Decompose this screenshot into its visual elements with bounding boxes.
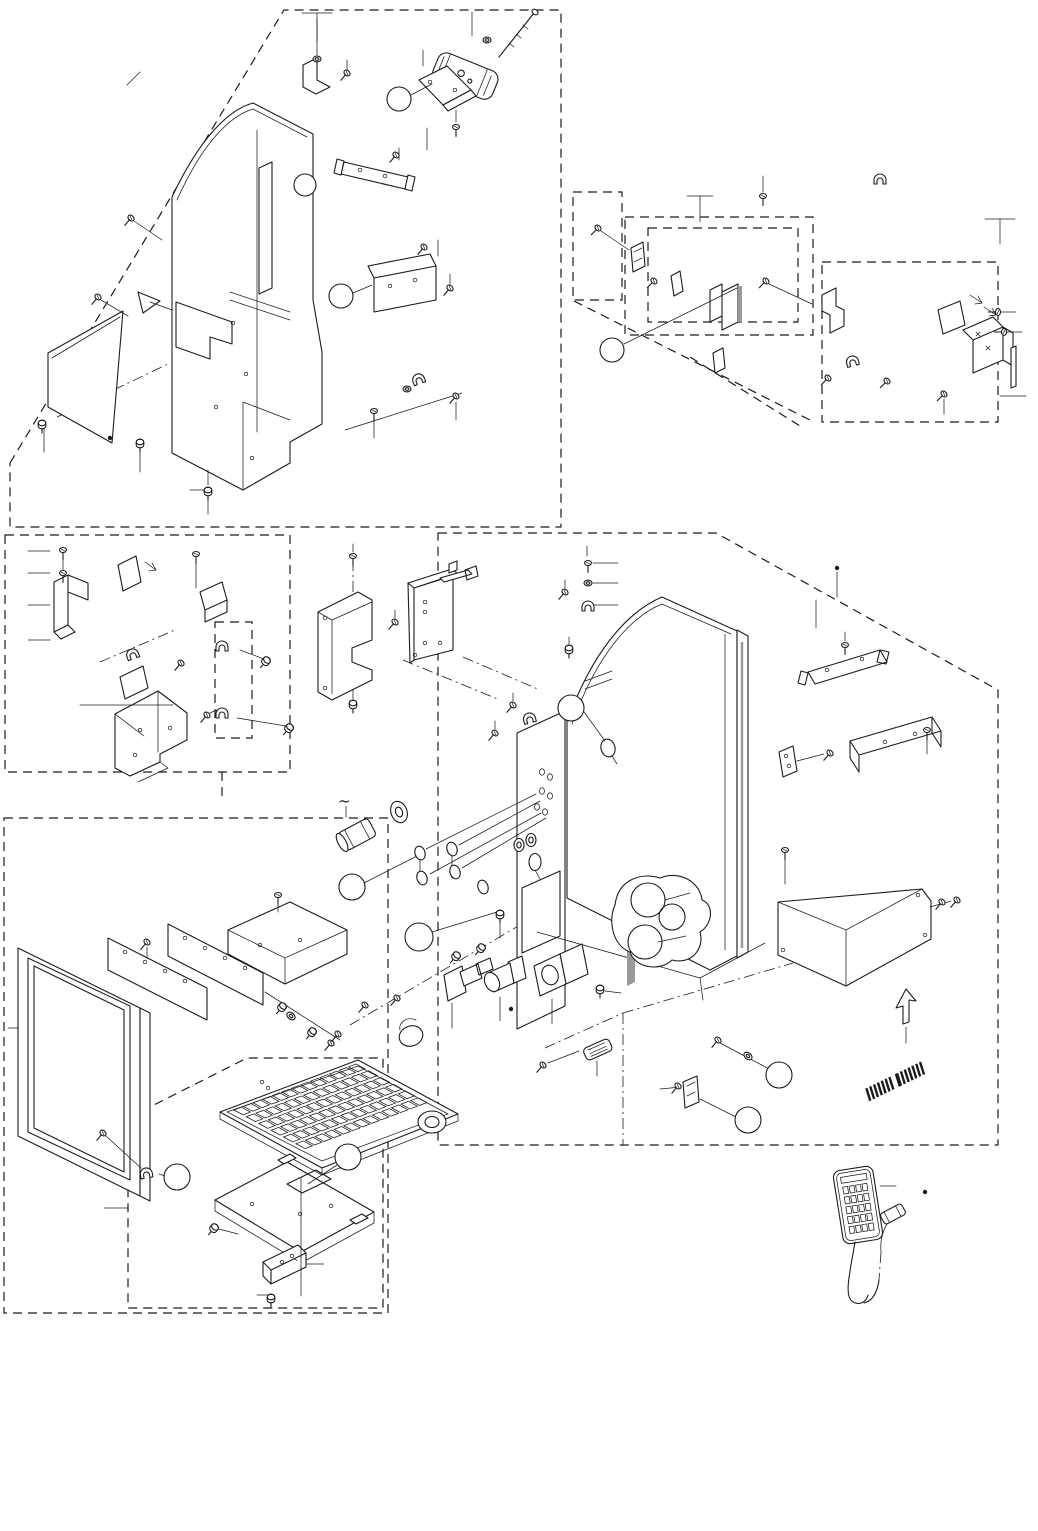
clip-plate <box>118 556 141 591</box>
d-sub-connector <box>582 1038 613 1061</box>
screw-icon <box>556 588 569 602</box>
flat-bar-bracket <box>341 162 408 189</box>
bolt-icon <box>596 985 604 998</box>
point-marker <box>835 566 839 570</box>
remote-cable <box>848 1242 868 1303</box>
long-screw <box>499 8 539 57</box>
monitor-assembly <box>18 902 347 1201</box>
side-plate <box>779 746 797 777</box>
boundary-hinge-small <box>573 192 622 300</box>
screw-icon <box>386 618 399 632</box>
callout-circle <box>735 1107 761 1133</box>
bolt-icon <box>281 722 295 737</box>
screw-icon <box>89 293 102 307</box>
remote-keypad <box>832 1165 883 1244</box>
reference-ticks <box>8 13 1015 1208</box>
triangle-clip <box>138 292 160 313</box>
small-plate <box>671 271 683 296</box>
direction-arrow-part <box>896 989 916 1024</box>
remote-keypad-assembly <box>832 1062 925 1303</box>
bolt-icon <box>304 1026 318 1041</box>
screw-icon <box>453 125 460 137</box>
screw-icon <box>935 390 948 403</box>
screw-hole <box>260 1080 264 1084</box>
screw-icon <box>138 938 151 952</box>
rubber-grommet <box>448 864 462 880</box>
cable-connector <box>880 1203 907 1225</box>
z-bracket <box>710 284 738 330</box>
boundary-diagonal-2 <box>690 357 800 426</box>
callout-circle <box>294 174 316 196</box>
screw-icon <box>842 643 849 655</box>
screw-icon <box>387 151 400 165</box>
small-mount-plate <box>200 582 227 622</box>
clamp-icon <box>411 372 426 386</box>
callout-circle <box>405 923 433 951</box>
tray-bracket <box>263 1245 306 1284</box>
nut-icon <box>313 56 321 62</box>
z-clip <box>822 288 844 333</box>
bolt-icon <box>496 910 504 923</box>
grommet-icon <box>514 839 524 852</box>
bolt-icon <box>473 942 487 957</box>
washer-ring <box>388 799 411 825</box>
clamp-icon <box>874 174 886 184</box>
boundary-tick <box>127 72 140 85</box>
screw-icon <box>589 224 602 237</box>
screw-icon <box>948 896 961 910</box>
latch-bracket <box>963 317 1013 373</box>
diagram-canvas: ~ <box>0 0 1038 1531</box>
bolt-icon <box>136 439 144 452</box>
callout-circle <box>387 87 411 111</box>
bolt-icon <box>349 700 357 713</box>
column-cover <box>172 103 322 490</box>
latch-strip <box>1011 346 1016 388</box>
screw-icon <box>350 554 357 566</box>
keyboard-tray-assembly <box>215 1060 458 1284</box>
bolt-icon <box>38 420 46 433</box>
direction-arrow <box>145 562 156 571</box>
boundary-latch-group <box>822 262 998 422</box>
side-panel <box>48 311 123 443</box>
screw-icon <box>486 729 499 743</box>
large-l-bracket <box>115 691 187 776</box>
z-strip-bracket <box>54 575 88 639</box>
round-cap <box>396 1019 425 1050</box>
clamp-icon <box>216 708 228 718</box>
callout-circle <box>329 284 353 308</box>
bolt-icon <box>565 645 573 658</box>
point-marker <box>509 1007 513 1011</box>
bolt-icon <box>448 950 462 965</box>
callout-circle <box>335 1144 361 1170</box>
small-channel-bracket <box>631 242 645 272</box>
angle-bracket <box>318 592 372 700</box>
column-cover-assembly <box>48 8 539 490</box>
screw-icon <box>821 749 834 763</box>
screw-icon <box>193 552 200 564</box>
chassis-keyhole <box>529 854 541 871</box>
z-bracket-shade <box>738 286 742 322</box>
screw-icon <box>782 848 789 860</box>
screw-icon <box>275 893 282 905</box>
small-bracket-group <box>54 556 227 782</box>
screw-icon <box>60 548 67 560</box>
screw-icon <box>534 1061 547 1075</box>
clamp-icon <box>582 601 594 611</box>
screw-hole <box>266 1086 270 1090</box>
clamp-icon <box>216 641 228 651</box>
exploded-parts-diagram: ~ <box>0 0 1038 1531</box>
screw-icon <box>122 214 135 228</box>
screw-icon <box>338 69 351 83</box>
screw-icon <box>198 711 211 725</box>
trackball-bezel <box>418 1111 446 1133</box>
clamp-icon <box>522 712 536 725</box>
top-bracket <box>303 58 330 94</box>
point-marker <box>923 1190 927 1194</box>
screw-icon <box>878 377 891 390</box>
latch-plate <box>938 301 965 334</box>
grommet-icon <box>526 834 536 847</box>
clamp-icon <box>845 355 859 368</box>
screw-icon <box>322 1039 335 1053</box>
small-strip <box>713 348 725 373</box>
point-marker <box>108 436 112 440</box>
rubber-grommet <box>445 841 459 857</box>
bolt-icon <box>267 1294 275 1307</box>
mid-plate <box>120 666 148 699</box>
screw-icon <box>645 277 658 290</box>
callout-circle <box>600 338 624 362</box>
cover-box <box>778 889 931 986</box>
tall-plate-bracket <box>408 569 458 663</box>
small-mount-bracket <box>683 1076 699 1108</box>
washer-icon <box>285 1011 296 1022</box>
nut-icon <box>483 37 491 43</box>
l-bracket <box>368 254 436 312</box>
screw-icon <box>933 898 946 912</box>
nut-icon <box>584 580 592 586</box>
boundary-bracket-subgroup <box>215 622 252 738</box>
callout-circle <box>558 695 584 721</box>
screw-icon <box>709 1036 722 1050</box>
direction-arrows <box>970 295 996 316</box>
hinge-latch-assembly <box>631 242 1016 388</box>
callout-circle <box>339 874 365 900</box>
caution-label-sticker <box>865 1062 926 1101</box>
screw-icon <box>585 561 592 573</box>
screw-icon <box>356 1001 369 1015</box>
slant-bar-bracket <box>798 650 889 685</box>
screw-icon <box>371 409 378 421</box>
lcd-monitor <box>18 948 150 1201</box>
screw-icon <box>819 374 832 387</box>
screw-icon <box>172 659 185 673</box>
screw-icon <box>760 194 767 206</box>
ac-power-symbol: ~ <box>338 792 351 810</box>
screw-icon <box>504 701 517 715</box>
clamp-icon <box>125 647 140 661</box>
bolt-icon <box>204 487 212 500</box>
rubber-grommet <box>415 870 429 886</box>
screw-icon <box>669 1082 682 1096</box>
callout-circle <box>766 1062 792 1088</box>
nut-icon <box>403 386 411 392</box>
callout-circle <box>164 1164 190 1190</box>
bolt-icon <box>274 1001 288 1016</box>
screw-icon <box>757 277 770 290</box>
remote-cable-break <box>879 1252 881 1280</box>
screw-icon <box>441 284 454 298</box>
main-cabinet-assembly <box>318 560 941 1108</box>
power-inlet <box>334 818 377 853</box>
bolt-icon <box>206 1222 220 1237</box>
rubber-grommet <box>413 845 427 861</box>
rubber-grommet <box>476 879 490 895</box>
